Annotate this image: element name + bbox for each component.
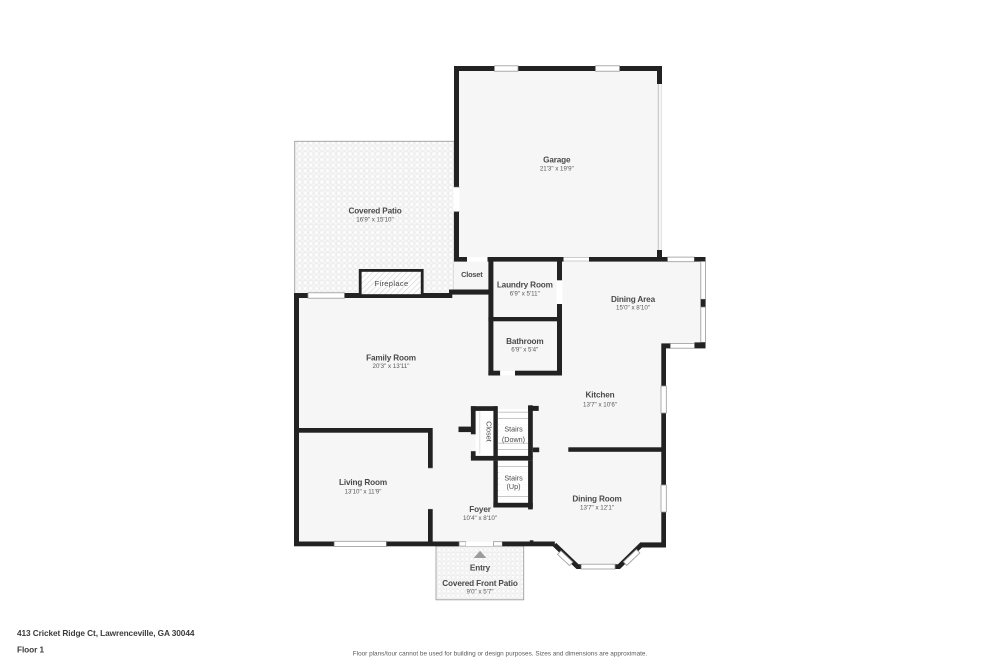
- svg-text:Covered Patio: Covered Patio: [348, 207, 401, 216]
- svg-text:413 Cricket Ridge Ct, Lawrence: 413 Cricket Ridge Ct, Lawrenceville, GA …: [17, 628, 195, 638]
- svg-text:Garage: Garage: [543, 155, 571, 164]
- svg-text:Stairs: Stairs: [504, 473, 523, 482]
- svg-text:Living Room: Living Room: [339, 478, 387, 487]
- svg-text:Closet: Closet: [461, 270, 483, 279]
- svg-text:Kitchen: Kitchen: [586, 391, 615, 400]
- svg-text:Dining Area: Dining Area: [611, 295, 656, 304]
- svg-text:20'3" x 13'11": 20'3" x 13'11": [373, 363, 410, 370]
- svg-text:Bathroom: Bathroom: [506, 337, 543, 346]
- svg-text:10'4" x 8'10": 10'4" x 8'10": [463, 515, 497, 522]
- svg-text:(Down): (Down): [502, 435, 525, 444]
- svg-text:(Up): (Up): [507, 482, 521, 491]
- svg-text:Laundry Room: Laundry Room: [497, 280, 553, 289]
- svg-text:6'9" x 5'4": 6'9" x 5'4": [511, 347, 538, 354]
- svg-text:Fireplace: Fireplace: [375, 279, 409, 288]
- svg-text:Dining Room: Dining Room: [572, 495, 621, 504]
- svg-text:15'0" x 8'10": 15'0" x 8'10": [616, 305, 650, 312]
- svg-text:Foyer: Foyer: [469, 505, 492, 514]
- svg-text:Entry: Entry: [470, 563, 491, 572]
- svg-text:Closet: Closet: [485, 421, 494, 442]
- svg-text:Floor 1: Floor 1: [17, 645, 44, 655]
- svg-text:13'10" x 11'9": 13'10" x 11'9": [345, 488, 382, 495]
- svg-text:Floor plans/tour cannot be use: Floor plans/tour cannot be used for buil…: [353, 651, 648, 658]
- svg-text:21'3" x 19'9": 21'3" x 19'9": [540, 166, 574, 173]
- svg-text:13'7" x 12'1": 13'7" x 12'1": [580, 504, 614, 511]
- svg-text:Stairs: Stairs: [504, 425, 523, 434]
- svg-text:9'0" x 5'7": 9'0" x 5'7": [466, 589, 493, 596]
- svg-text:13'7" x 10'6": 13'7" x 10'6": [583, 401, 617, 408]
- svg-text:Family Room: Family Room: [366, 354, 416, 363]
- svg-text:Covered Front Patio: Covered Front Patio: [442, 579, 518, 588]
- svg-text:6'9" x 5'11": 6'9" x 5'11": [510, 290, 540, 297]
- svg-text:16'9" x 15'10": 16'9" x 15'10": [356, 216, 393, 223]
